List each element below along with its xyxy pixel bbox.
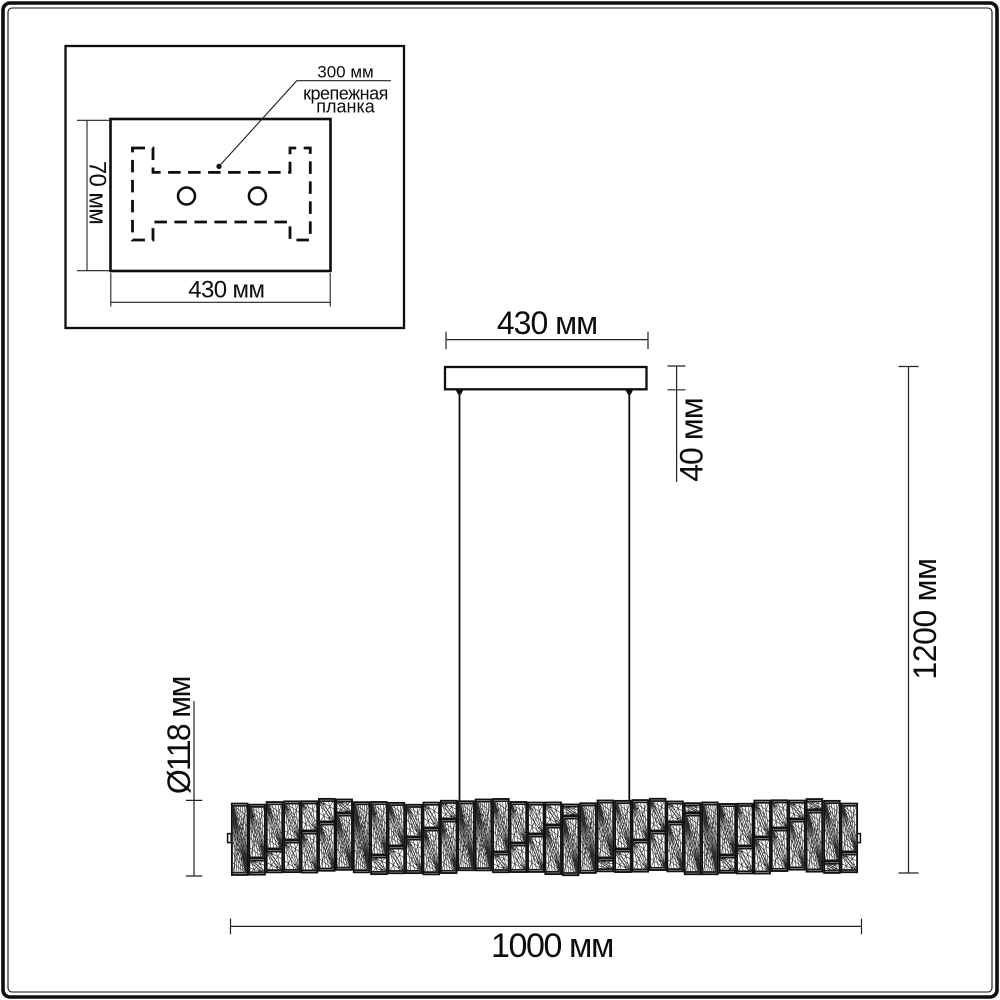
svg-text:планка: планка — [316, 97, 375, 117]
svg-text:300 мм: 300 мм — [317, 63, 373, 82]
svg-text:430 мм: 430 мм — [188, 276, 264, 303]
svg-text:1000 мм: 1000 мм — [491, 927, 613, 965]
svg-text:70 мм: 70 мм — [84, 161, 111, 224]
svg-text:1200 мм: 1200 мм — [907, 558, 943, 679]
svg-text:Ø118 мм: Ø118 мм — [161, 677, 197, 794]
svg-text:430 мм: 430 мм — [497, 305, 597, 341]
svg-text:40 мм: 40 мм — [674, 398, 710, 481]
